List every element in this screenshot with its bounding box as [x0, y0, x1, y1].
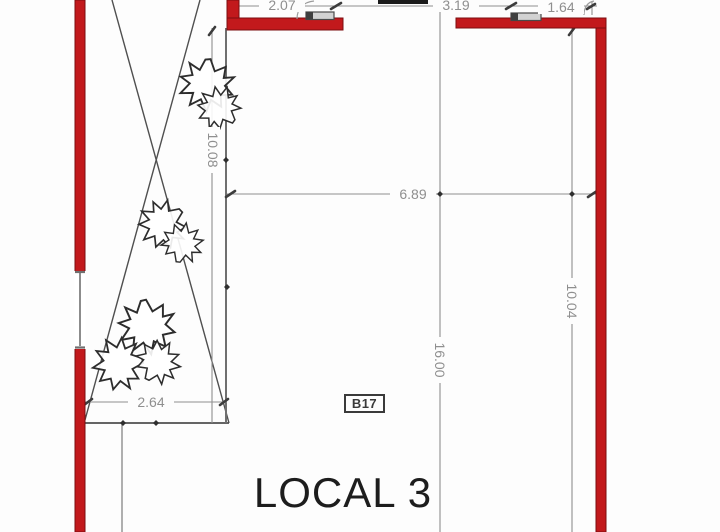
- dim-label-interior-width: 6.89: [390, 187, 436, 201]
- floorplan-canvas: [0, 0, 720, 532]
- dim-label-top-middle: 3.19: [433, 0, 479, 12]
- dimension-lines: [85, 1, 597, 532]
- walls: [75, 0, 606, 532]
- left-wall: [75, 0, 85, 532]
- dim-label-center-height: 16.00: [433, 337, 447, 383]
- dim-label-left-height: 10.08: [206, 127, 220, 173]
- floorplan-page: 2.07 3.19 1.64 6.89 2.64 10.08 16.00 10.…: [0, 0, 720, 532]
- right-wall: [596, 18, 606, 532]
- unit-code-badge: B17: [344, 394, 385, 413]
- dim-label-planter-width: 2.64: [128, 395, 174, 409]
- dim-label-right-height: 10.04: [565, 278, 579, 324]
- top-clipped-bar: [378, 0, 428, 4]
- window-left: [75, 271, 86, 349]
- tree-icon: [93, 338, 143, 390]
- room-title: LOCAL 3: [248, 471, 438, 515]
- dim-label-top-left: 2.07: [259, 0, 305, 12]
- dim-label-top-right: 1.64: [538, 0, 584, 14]
